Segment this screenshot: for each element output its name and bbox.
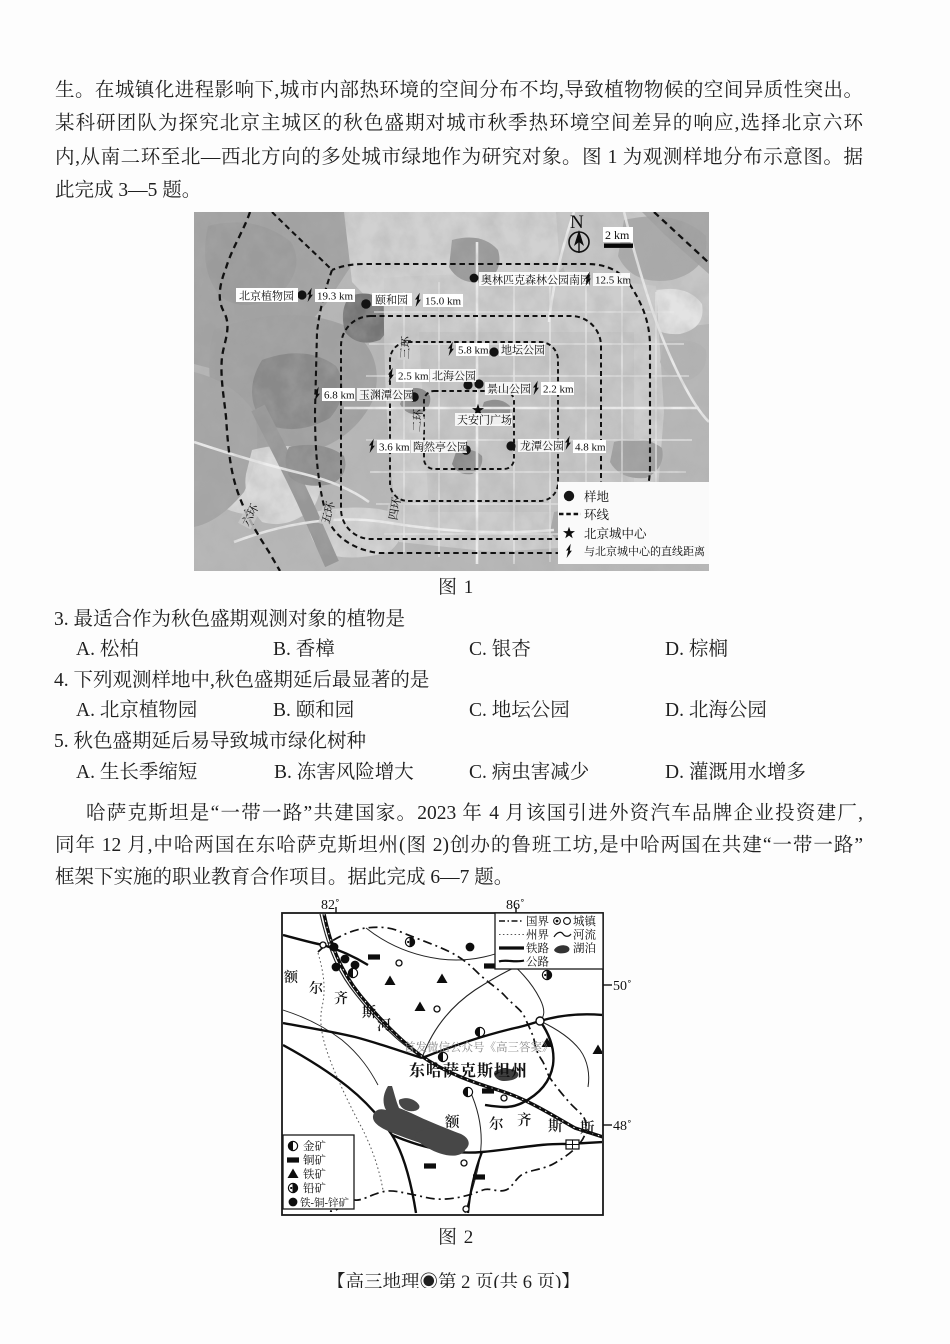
svg-text:19.3 km: 19.3 km (317, 291, 354, 303)
svg-text:与北京城中心的直线距离: 与北京城中心的直线距离 (584, 544, 705, 558)
svg-text:铁矿: 铁矿 (303, 1167, 326, 1181)
svg-text:北海公园: 北海公园 (432, 369, 476, 383)
svg-text:6.8 km: 6.8 km (324, 390, 355, 402)
svg-text:北京城中心: 北京城中心 (584, 526, 647, 541)
svg-text:三环: 三环 (398, 335, 413, 360)
svg-text:二环: 二环 (410, 408, 425, 433)
svg-text:齐: 齐 (517, 1112, 532, 1129)
svg-text:4.8 km: 4.8 km (575, 442, 606, 454)
svg-text:尔: 尔 (489, 1115, 504, 1133)
svg-text:额: 额 (283, 969, 299, 986)
svg-text:2 km: 2 km (605, 228, 630, 242)
svg-text:陶然亭公园: 陶然亭公园 (413, 440, 468, 454)
svg-text:公路: 公路 (526, 956, 549, 969)
svg-text:齐: 齐 (334, 991, 348, 1007)
svg-text:12.5 km: 12.5 km (595, 275, 632, 287)
svg-text:48˚: 48˚ (613, 1119, 632, 1134)
svg-text:尔: 尔 (309, 980, 324, 997)
svg-text:金矿: 金矿 (303, 1139, 326, 1153)
svg-text:5.8 km: 5.8 km (458, 345, 489, 357)
svg-text:景山公园: 景山公园 (487, 383, 531, 396)
svg-text:环线: 环线 (584, 507, 610, 522)
svg-text:湖泊: 湖泊 (573, 941, 596, 955)
svg-text:首发微信公众号《高三答案》: 首发微信公众号《高三答案》 (404, 1040, 554, 1054)
svg-text:额: 额 (444, 1114, 460, 1131)
svg-text:河流: 河流 (573, 928, 596, 942)
svg-text:北京植物园: 北京植物园 (239, 289, 294, 303)
svg-text:河: 河 (377, 1018, 391, 1034)
svg-text:斯: 斯 (362, 1005, 376, 1021)
svg-text:州界: 州界 (526, 929, 549, 942)
svg-text:铁路: 铁路 (526, 941, 549, 955)
svg-text:奥林匹克森林公园南园: 奥林匹克森林公园南园 (481, 273, 591, 287)
svg-text:铜矿: 铜矿 (303, 1153, 326, 1167)
svg-text:样地: 样地 (584, 489, 610, 504)
svg-text:东哈萨克斯坦州: 东哈萨克斯坦州 (409, 1061, 528, 1080)
svg-text:铁-铜-锌矿: 铁-铜-锌矿 (300, 1196, 349, 1209)
svg-text:斯: 斯 (548, 1118, 563, 1135)
svg-text:3.6 km: 3.6 km (379, 442, 410, 454)
svg-text:天安门广场: 天安门广场 (457, 413, 512, 427)
svg-text:颐和园: 颐和园 (375, 294, 408, 307)
svg-text:82˚: 82˚ (321, 898, 340, 913)
svg-text:2.2 km: 2.2 km (543, 384, 574, 396)
svg-text:国界: 国界 (526, 915, 549, 928)
svg-text:地坛公园: 地坛公园 (501, 343, 545, 357)
svg-text:城镇: 城镇 (573, 914, 597, 928)
svg-text:斯: 斯 (580, 1120, 595, 1137)
svg-text:15.0 km: 15.0 km (425, 296, 462, 308)
svg-text:铅矿: 铅矿 (303, 1181, 326, 1195)
svg-text:玉渊潭公园: 玉渊潭公园 (359, 388, 414, 402)
svg-text:50˚: 50˚ (613, 979, 632, 994)
svg-text:N: N (570, 212, 584, 233)
svg-text:龙潭公园: 龙潭公园 (520, 439, 564, 453)
svg-text:2.5 km: 2.5 km (398, 371, 429, 383)
